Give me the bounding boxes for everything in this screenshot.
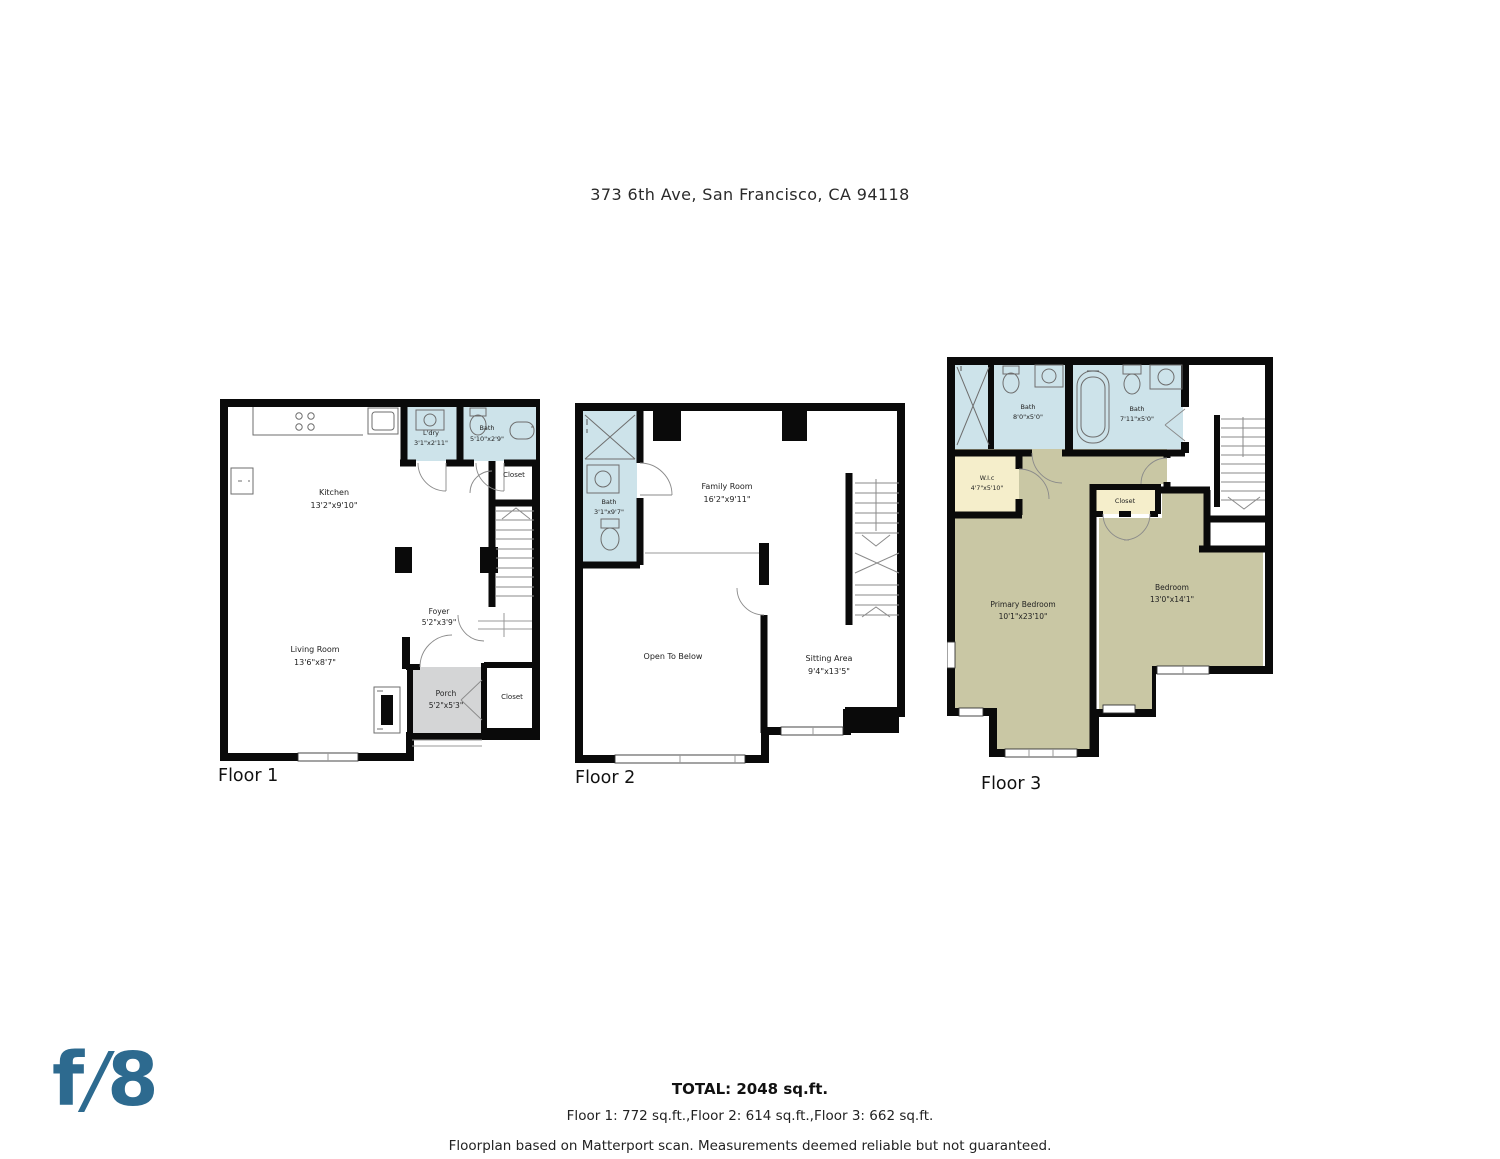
room-label-bath-f3a: Bath (1020, 403, 1035, 411)
stairs-icon-f3 (1221, 417, 1265, 509)
floor-1-caption: Floor 1 (218, 766, 278, 786)
f8-logo: f/8 (52, 1040, 156, 1121)
room-label-kitchen: Kitchen (319, 488, 349, 497)
windows-f2 (615, 727, 843, 763)
stairs-icon-f2 (855, 479, 899, 617)
room-bath-f3a (955, 365, 1065, 449)
room-dims-kitchen: 13'2"x9'10" (310, 501, 357, 510)
room-label-porch: Porch (436, 689, 457, 698)
floor-sqft-breakdown: Floor 1: 772 sq.ft.,Floor 2: 614 sq.ft.,… (0, 1108, 1500, 1124)
floor-3-drawing: Bath 8'0"x5'0" Bath 7'11"x5'0" W.I.c 4'7… (947, 357, 1273, 771)
room-dims-laundry: 3'1"x2'11" (414, 439, 448, 447)
kitchen-counter (231, 407, 398, 494)
room-dims-living: 13'6"x8'7" (294, 658, 336, 667)
room-label-foyer: Foyer (429, 607, 451, 616)
room-label-living: Living Room (290, 645, 339, 654)
floor-1-plan: Kitchen 13'2"x9'10" L'dry 3'1"x2'11" Bat… (220, 399, 540, 767)
floor-3-plan: Bath 8'0"x5'0" Bath 7'11"x5'0" W.I.c 4'7… (947, 357, 1273, 771)
room-dims-bath-f2: 3'1"x9'7" (594, 508, 624, 516)
floor-2-caption: Floor 2 (575, 768, 635, 788)
room-wic (955, 453, 1019, 515)
room-dims-primary: 10'1"x23'10" (999, 612, 1048, 621)
room-label-closet-f3: Closet (1115, 497, 1136, 505)
room-dims-foyer: 5'2"x3'9" (422, 618, 457, 627)
disclaimer: Floorplan based on Matterport scan. Meas… (0, 1138, 1500, 1154)
room-label-bath-f2: Bath (601, 498, 616, 506)
room-label-family: Family Room (701, 482, 752, 491)
page-title: 373 6th Ave, San Francisco, CA 94118 (0, 185, 1500, 204)
room-dims-bath-f1: 5'10"x2'9" (470, 435, 504, 443)
floor-2-plan: Bath 3'1"x9'7" Family Room 16'2"x9'11" O… (575, 403, 905, 765)
floor-3-caption: Floor 3 (981, 774, 1041, 794)
room-label-wic: W.I.c (980, 475, 995, 482)
logo-f: f (52, 1037, 81, 1123)
room-dims-bath-f3b: 7'11"x5'0" (1120, 415, 1154, 423)
room-label-closet-top: Closet (503, 471, 525, 479)
floorplan-sheet: 373 6th Ave, San Francisco, CA 94118 (0, 0, 1500, 1159)
fireplace-icon (374, 687, 400, 733)
room-dims-bedroom: 13'0"x14'1" (1150, 595, 1194, 604)
room-label-primary: Primary Bedroom (990, 600, 1055, 609)
room-bath-f1 (460, 407, 536, 461)
room-label-bath-f1: Bath (479, 424, 494, 432)
room-label-sitting: Sitting Area (806, 654, 853, 663)
room-dims-porch: 5'2"x5'3" (429, 701, 464, 710)
room-label-laundry: L'dry (423, 429, 439, 437)
room-label-bath-f3b: Bath (1129, 405, 1144, 413)
room-dims-bath-f3a: 8'0"x5'0" (1013, 413, 1043, 421)
room-label-closet-bottom: Closet (501, 693, 523, 701)
total-sqft: TOTAL: 2048 sq.ft. (0, 1080, 1500, 1098)
room-label-bedroom: Bedroom (1155, 583, 1189, 592)
logo-slash: / (81, 1037, 107, 1123)
floor-1-drawing: Kitchen 13'2"x9'10" L'dry 3'1"x2'11" Bat… (220, 399, 540, 767)
stove-icon (296, 413, 314, 430)
logo-eight: 8 (107, 1037, 156, 1123)
floor-2-drawing: Bath 3'1"x9'7" Family Room 16'2"x9'11" O… (575, 403, 905, 765)
room-dims-sitting: 9'4"x13'5" (808, 667, 850, 676)
room-bath-f2 (583, 411, 637, 563)
room-dims-family: 16'2"x9'11" (703, 495, 750, 504)
room-label-open-to-below: Open To Below (644, 652, 703, 661)
room-dims-wic: 4'7"x5'10" (971, 485, 1004, 492)
